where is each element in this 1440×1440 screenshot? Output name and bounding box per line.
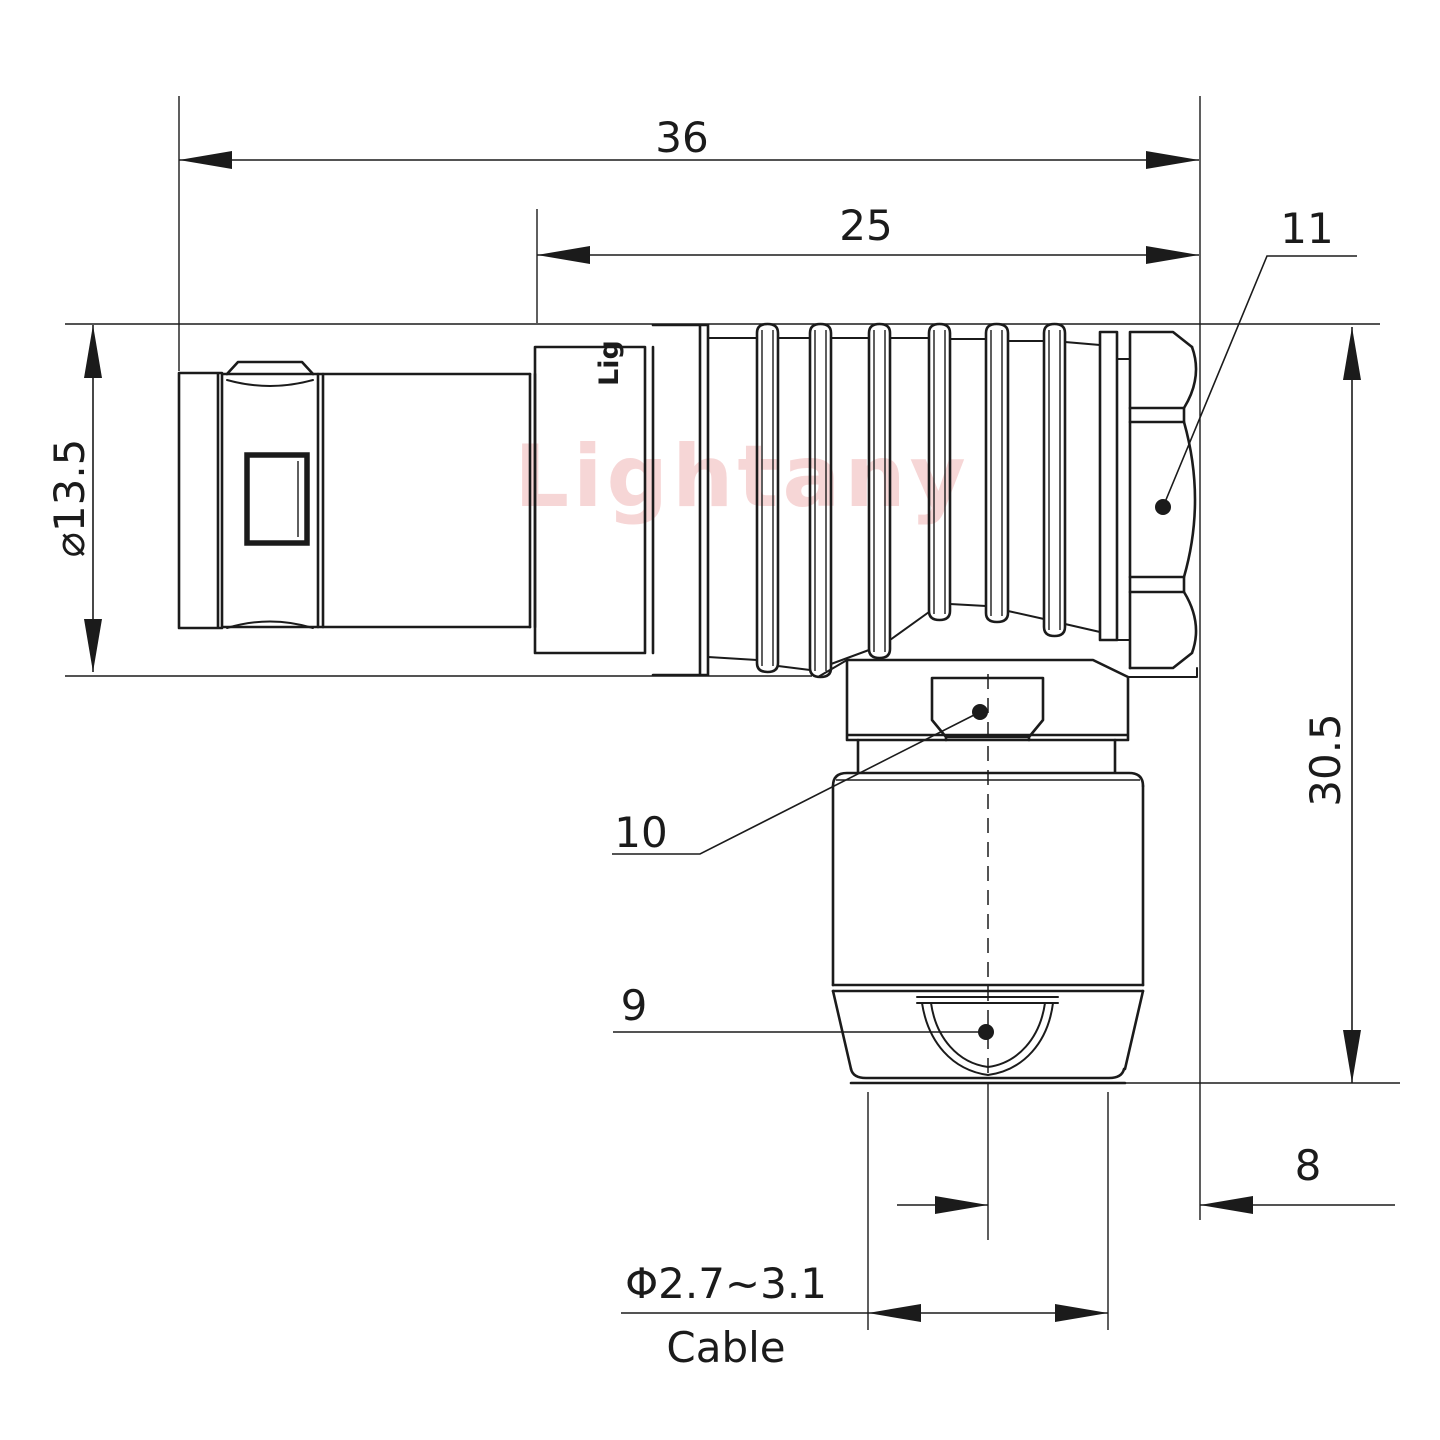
watermark-text: Lightany [514,427,970,527]
callout-cable-sleeve-dot [978,1024,994,1040]
boot-rib [986,324,1008,622]
extension-lines [65,96,1400,1330]
callout-backnut-label: 11 [1280,204,1333,253]
dim-height-value: 30.5 [1301,713,1350,807]
callout-cable-sleeve-label: 9 [621,981,648,1030]
dim-overall-length: 36 [179,113,1199,169]
cable-gland-body [833,674,1143,1240]
dim-overall-length-value: 36 [655,113,708,162]
callout-backnut-dot [1155,499,1171,515]
dim-offset-value: 8 [1295,1141,1322,1190]
callout-clamp-nut-label: 10 [614,808,667,857]
dim-height: 30.5 [1301,327,1361,1083]
front-plug [179,362,535,628]
collar-engraving: Lig [594,340,625,386]
boot-rib [1044,324,1065,636]
neck-washer [858,740,1115,772]
dim-offset: 8 [897,1141,1395,1214]
callout-clamp-nut-dot [972,704,988,720]
dim-cable-label: Cable [666,1323,785,1372]
dim-front-diameter-value: ⌀13.5 [45,439,94,558]
dim-cable-value: Φ2.7~3.1 [625,1259,827,1308]
dim-boot-length-value: 25 [839,201,892,250]
connector-technical-drawing: Lightany Lig [0,0,1440,1440]
callout-backnut: 11 [1155,204,1357,515]
dim-cable: Φ2.7~3.1 Cable [621,1259,1108,1372]
dim-boot-length: 25 [537,201,1199,264]
dim-front-diameter: ⌀13.5 [45,325,102,672]
